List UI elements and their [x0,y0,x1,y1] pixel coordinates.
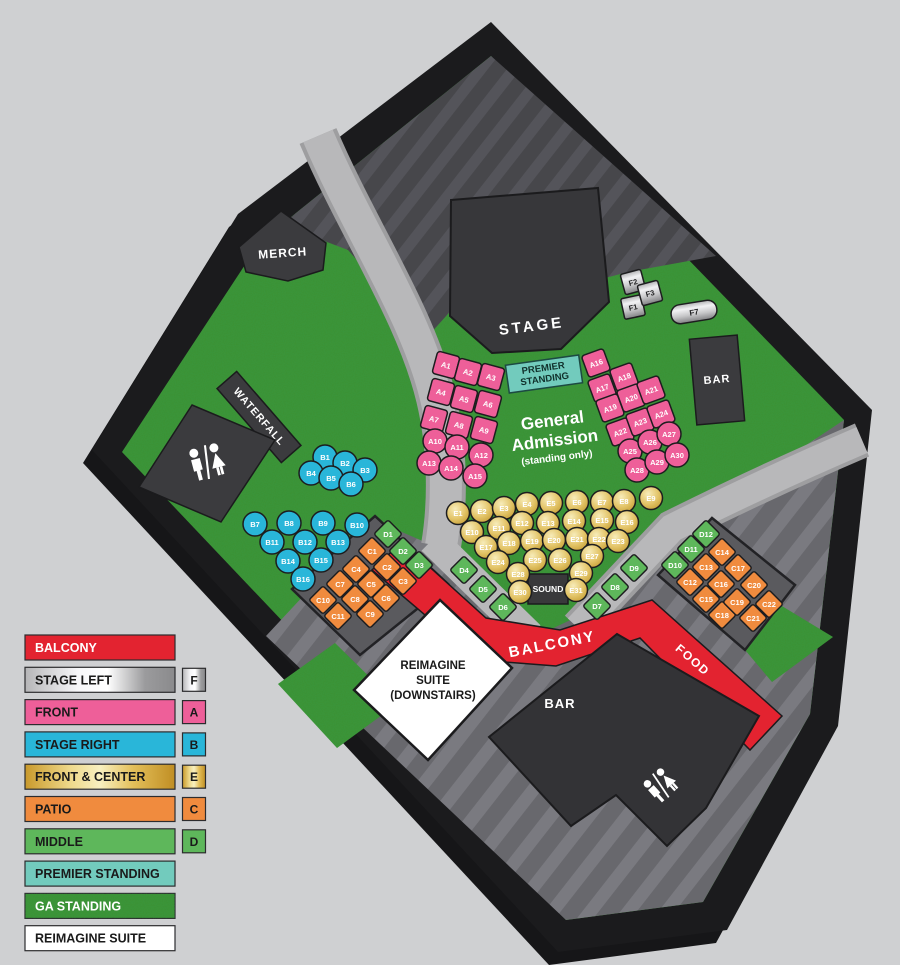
seat-a15-label: A15 [468,472,482,481]
seat-e19-label: E19 [525,537,538,546]
seat-a12-label: A12 [474,451,488,460]
seat-a30-label: A30 [670,451,684,460]
seat-b13[interactable]: B13 [326,530,350,554]
seat-e24-label: E24 [491,558,505,567]
seat-e30[interactable]: E30 [509,581,532,604]
seat-b11-label: B11 [265,538,278,547]
seat-b12-label: B12 [298,538,312,547]
seat-b15-label: B15 [314,556,328,565]
seat-b15[interactable]: B15 [309,548,333,572]
seat-e31[interactable]: E31 [565,579,588,602]
seat-d10-label: D10 [668,561,682,570]
seat-a5[interactable]: A5 [450,385,478,413]
seat-a15[interactable]: A15 [463,464,487,488]
seat-d9-label: D9 [629,564,639,573]
seat-b2-label: B2 [340,459,350,468]
seat-e10-label: E10 [465,528,478,537]
seat-b5-label: B5 [326,474,336,483]
seat-e13-label: E13 [541,519,554,528]
legend-letter: C [190,803,199,817]
seat-b7[interactable]: B7 [243,512,267,536]
seat-b6[interactable]: B6 [339,472,363,496]
legend-label: MIDDLE [35,835,83,849]
seat-d4-label: D4 [459,566,469,575]
seat-e21-label: E21 [570,535,583,544]
seat-b16[interactable]: B16 [291,567,315,591]
venue-map: STAGE MERCH WATERFALL BALCONY FOOD [0,0,900,965]
legend-item-ga-standing: GA STANDING [25,893,175,918]
legend-label: FRONT & CENTER [35,770,145,784]
legend-item-balcony: BALCONY [25,635,175,660]
legend-letter: D [190,835,199,849]
seat-c12-label: C12 [683,578,697,587]
seat-e25-label: E25 [528,556,541,565]
seat-c17-label: C17 [731,564,745,573]
seat-e18-label: E18 [502,539,515,548]
seat-a27-label: A27 [662,430,676,439]
seat-a6[interactable]: A6 [474,390,502,418]
seat-b10-label: B10 [350,521,364,530]
seat-b8[interactable]: B8 [277,511,301,535]
seat-c10-label: C10 [316,596,330,605]
seat-e16-label: E16 [620,518,633,527]
legend-label: STAGE RIGHT [35,738,120,752]
seat-e20-label: E20 [547,536,560,545]
seat-e4-label: E4 [522,500,532,509]
suite-label-1: REIMAGINE [400,660,466,672]
seat-c20-label: C20 [747,581,761,590]
legend-label: PATIO [35,803,72,817]
seat-b11[interactable]: B11 [260,530,284,554]
sound-label: SOUND [533,584,564,594]
seat-e7-label: E7 [597,498,606,507]
seat-c18-label: C18 [715,611,729,620]
seat-e9-label: E9 [646,494,655,503]
bar-top-label: BAR [703,373,731,387]
seat-e24[interactable]: E24 [487,551,510,574]
seat-b8-label: B8 [284,519,294,528]
seat-c1-label: C1 [367,547,377,556]
seat-e8-label: E8 [619,497,628,506]
seat-a10-label: A10 [428,437,442,446]
legend-item-reimagine-suite: REIMAGINE SUITE [25,926,175,951]
seat-c19-label: C19 [730,598,744,607]
seat-a3[interactable]: A3 [477,363,505,391]
legend-letter: E [190,770,198,784]
seat-e8[interactable]: E8 [613,490,636,513]
seat-a25-label: A25 [623,447,637,456]
seat-b4-label: B4 [306,469,316,478]
seat-a10[interactable]: A10 [423,429,447,453]
seat-b13-label: B13 [331,538,345,547]
legend-label: STAGE LEFT [35,673,112,687]
seat-d7-label: D7 [592,602,602,611]
seat-d8-label: D8 [610,583,620,592]
seat-e2[interactable]: E2 [471,500,494,523]
seat-a26-label: A26 [643,438,657,447]
seat-e1-label: E1 [453,509,462,518]
seat-f1-label: F1 [628,302,638,313]
seat-c6-label: C6 [381,594,391,603]
seat-e22-label: E22 [592,535,605,544]
seat-b7-label: B7 [250,520,260,529]
legend-label: BALCONY [35,641,97,655]
seat-e23[interactable]: E23 [607,530,630,553]
bar-bottom-label: BAR [544,696,575,711]
seat-d11-label: D11 [684,545,697,554]
seat-c16-label: C16 [714,580,728,589]
seat-e31-label: E31 [569,586,582,595]
seat-a9[interactable]: A9 [470,416,498,444]
seat-e27-label: E27 [585,552,598,561]
seat-e23-label: E23 [611,537,624,546]
seat-e26[interactable]: E26 [549,549,572,572]
seat-a14[interactable]: A14 [439,456,463,480]
legend-label: PREMIER STANDING [35,867,160,881]
seat-c4-label: C4 [351,565,361,574]
seat-e5-label: E5 [546,499,555,508]
seat-e30-label: E30 [513,588,526,597]
suite-label-3: (DOWNSTAIRS) [390,690,476,702]
seat-e28-label: E28 [511,570,524,579]
seat-e6-label: E6 [572,498,581,507]
seat-d5-label: D5 [478,585,488,594]
seat-e11-label: E11 [493,524,506,533]
legend-label: GA STANDING [35,899,121,913]
seat-e14-label: E14 [567,517,581,526]
sound-booth: SOUND [528,574,568,604]
seat-b1-label: B1 [320,453,330,462]
seat-c7-label: C7 [335,580,345,589]
seat-a13[interactable]: A13 [417,451,441,475]
legend-item-premier-standing: PREMIER STANDING [25,861,175,886]
seat-a11-label: A11 [450,443,463,452]
seat-f3[interactable]: F3 [637,280,663,306]
seat-e26-label: E26 [553,556,566,565]
seat-a12[interactable]: A12 [469,443,493,467]
seat-c21-label: C21 [746,614,760,623]
seat-c22-label: C22 [762,600,776,609]
seat-e15-label: E15 [595,516,608,525]
seat-e3-label: E3 [499,504,508,513]
suite-label-2: SUITE [416,675,450,687]
seat-a14-label: A14 [444,464,459,473]
seat-e2-label: E2 [477,507,486,516]
seat-e1[interactable]: E1 [447,502,470,525]
bar-top: BAR [689,335,744,425]
seat-e5[interactable]: E5 [540,492,563,515]
seat-c9-label: C9 [365,610,375,619]
legend-letter: B [190,738,199,752]
seating-map-page: STAGE MERCH WATERFALL BALCONY FOOD [0,0,900,965]
seat-d12-label: D12 [699,530,713,539]
seat-b9-label: B9 [318,519,328,528]
seat-a11[interactable]: A11 [445,435,469,459]
seat-c11-label: C11 [331,612,344,621]
seat-b6-label: B6 [346,480,356,489]
seat-c3-label: C3 [398,577,408,586]
seat-d6-label: D6 [498,603,508,612]
seat-e17-label: E17 [479,543,492,552]
seat-a28-label: A28 [630,466,644,475]
seat-e12-label: E12 [515,519,528,528]
seat-b3-label: B3 [360,466,370,475]
seat-c8-label: C8 [350,595,360,604]
seat-c5-label: C5 [366,580,376,589]
legend-letter: F [190,673,197,687]
seat-a13-label: A13 [422,459,436,468]
seat-d1-label: D1 [383,530,393,539]
seat-a29-label: A29 [650,458,664,467]
seat-c2-label: C2 [382,563,392,572]
legend-letter: A [190,706,199,720]
legend-label: FRONT [35,706,78,720]
seat-c13-label: C13 [699,563,713,572]
seat-e29-label: E29 [574,569,587,578]
seat-b14-label: B14 [281,557,296,566]
legend-label: REIMAGINE SUITE [35,932,146,946]
seat-c15-label: C15 [699,595,713,604]
seat-c14-label: C14 [715,548,730,557]
seat-a30[interactable]: A30 [665,443,689,467]
seat-d2-label: D2 [398,547,408,556]
seat-e9[interactable]: E9 [640,487,663,510]
seat-b16-label: B16 [296,575,310,584]
seat-d3-label: D3 [414,561,424,570]
seat-b10[interactable]: B10 [345,513,369,537]
